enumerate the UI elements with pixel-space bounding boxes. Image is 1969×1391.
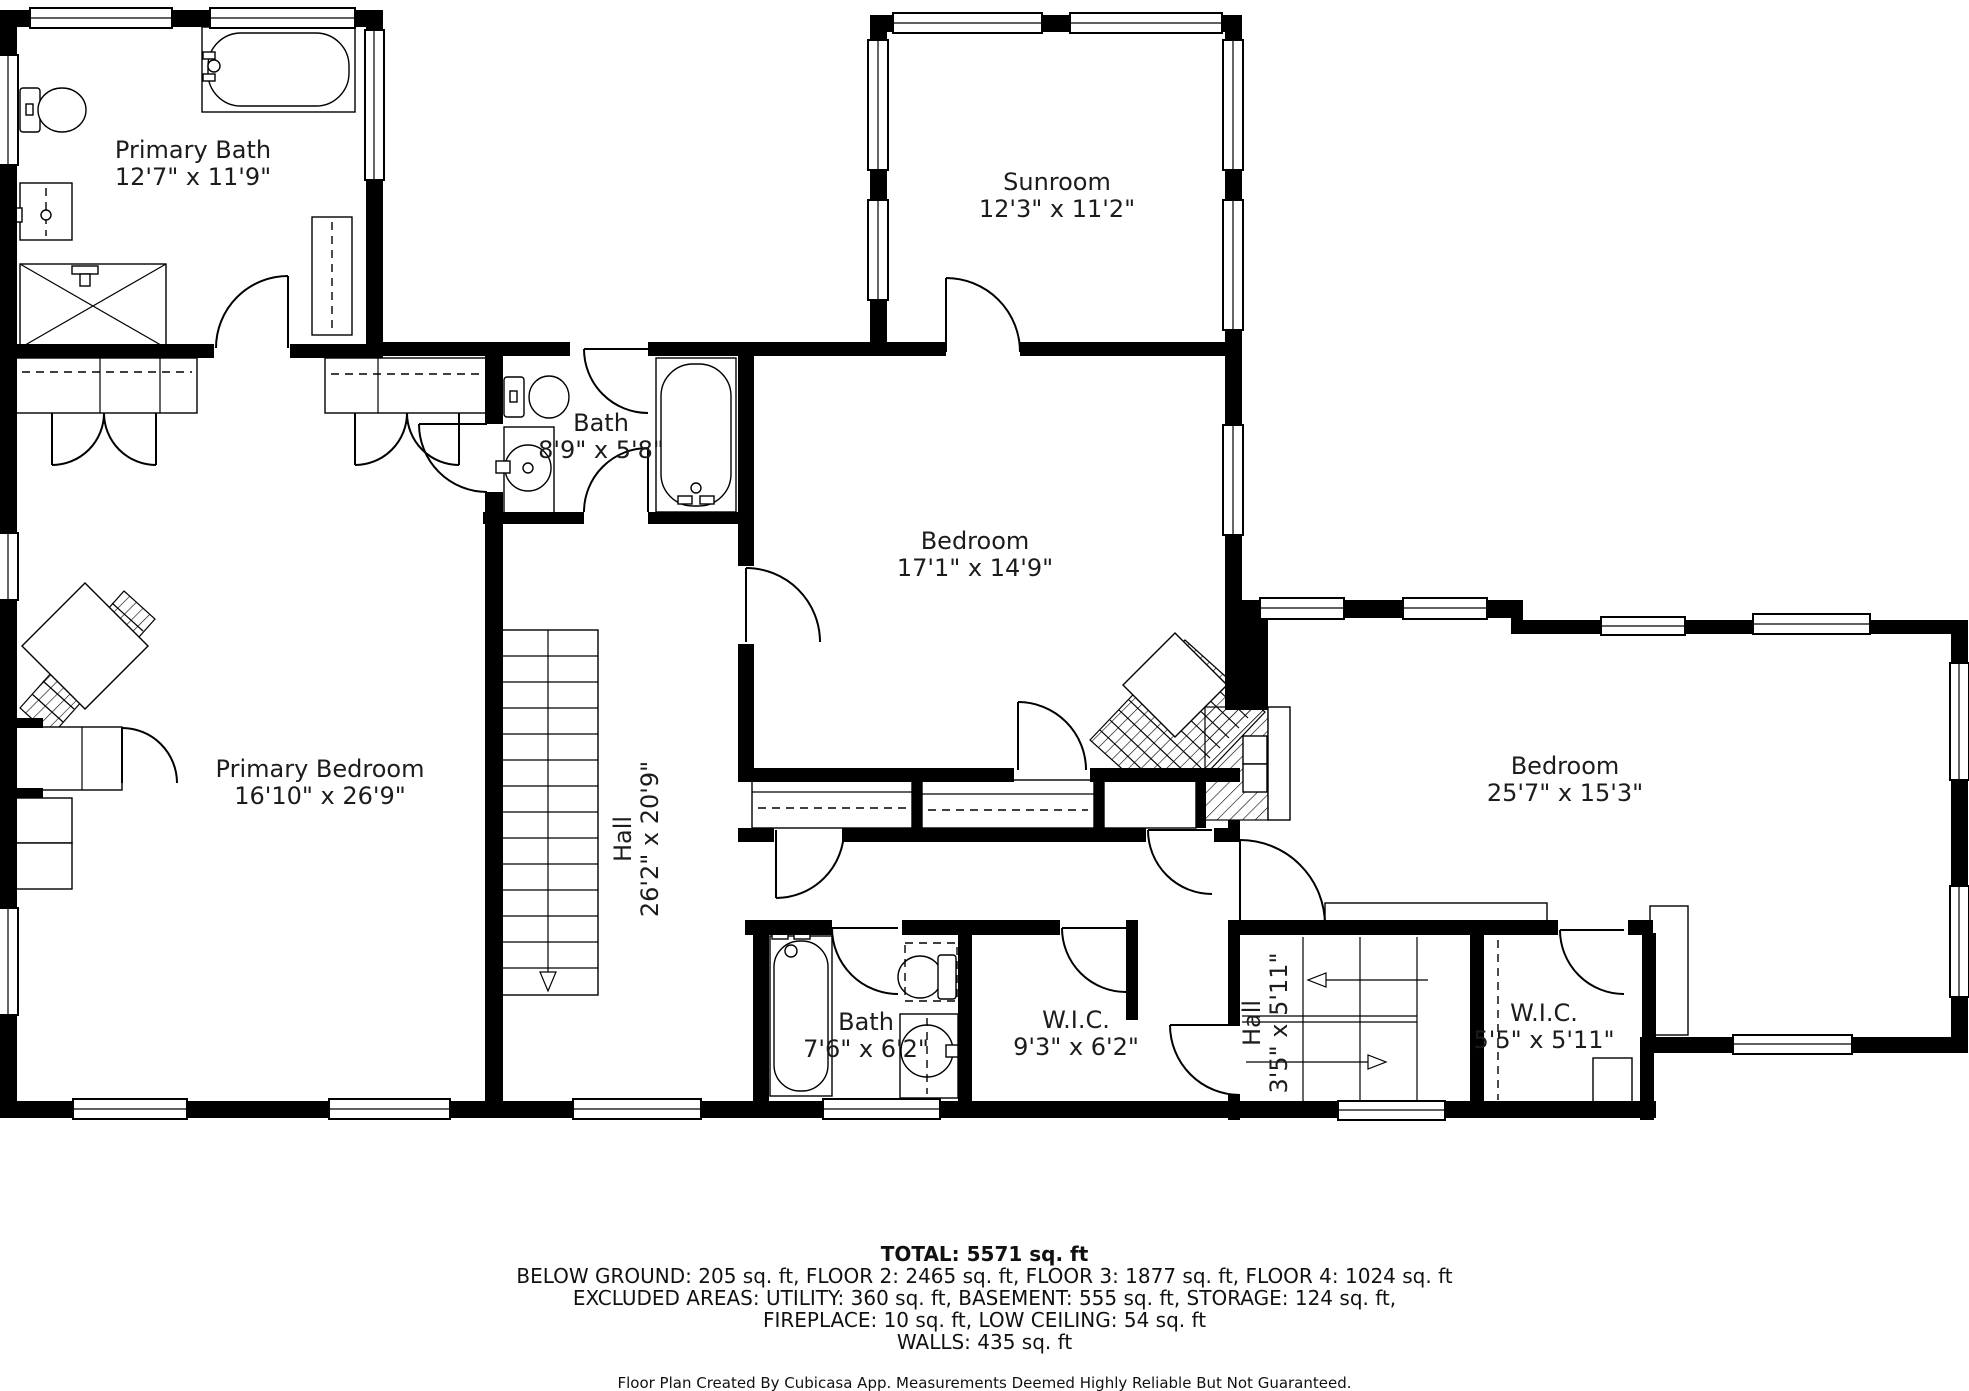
bedroom-closets <box>752 780 1196 828</box>
stairs-hall <box>498 630 598 995</box>
area-line: WALLS: 435 sq. ft <box>0 1331 1969 1353</box>
area-line: FIREPLACE: 10 sq. ft, LOW CEILING: 54 sq… <box>0 1309 1969 1331</box>
window <box>893 13 1042 33</box>
room-label-bedroom-middle: Bedroom17'1" x 14'9" <box>897 527 1053 582</box>
shelf <box>16 843 72 889</box>
double-door-closet-left <box>52 413 156 465</box>
stairs-primary-bedroom-diagonal <box>20 583 155 736</box>
primary-bedroom-furniture <box>16 727 122 889</box>
room-label-wic-small: W.I.C.5'5" x 5'11" <box>1473 999 1614 1054</box>
room-dimensions: 3'5" x 5'11" <box>1265 952 1293 1093</box>
fireplace <box>1205 707 1290 820</box>
room-name: Sunroom <box>1003 168 1111 196</box>
area-summary: TOTAL: 5571 sq. ft BELOW GROUND: 205 sq.… <box>0 1243 1969 1353</box>
closet <box>16 358 197 413</box>
window <box>0 533 18 600</box>
door-corridor-left <box>776 830 844 898</box>
window <box>1223 40 1243 170</box>
window <box>1338 1101 1445 1120</box>
window <box>210 8 355 28</box>
faucet-icon <box>785 945 797 957</box>
door-primary-bedroom <box>419 424 487 492</box>
total-area: TOTAL: 5571 sq. ft <box>0 1243 1969 1265</box>
area-line: EXCLUDED AREAS: UTILITY: 360 sq. ft, BAS… <box>0 1287 1969 1309</box>
stairs-arrow-icon <box>1308 973 1326 987</box>
doors <box>52 276 1624 1095</box>
room-label-hall-lower: Hall3'5" x 5'11" <box>1238 952 1293 1093</box>
room-label-bath-middle: Bath8'9" x 5'8" <box>538 409 664 464</box>
credit-line: Floor Plan Created By Cubicasa App. Meas… <box>0 1374 1969 1391</box>
room-dimensions: 25'7" x 15'3" <box>1487 779 1643 807</box>
window <box>1733 1035 1852 1054</box>
stairs-arrow-icon <box>1368 1055 1386 1069</box>
door-bedroom-middle-bottom <box>1018 702 1086 770</box>
room-label-hall-main: Hall26'2" x 20'9" <box>609 761 664 917</box>
room-dimensions: 5'5" x 5'11" <box>1473 1026 1614 1054</box>
window <box>1753 614 1870 634</box>
window <box>365 30 384 180</box>
room-dimensions: 12'7" x 11'9" <box>115 163 271 191</box>
window <box>1070 13 1222 33</box>
door-corridor-right <box>1148 830 1212 894</box>
room-name: Primary Bedroom <box>216 755 425 783</box>
window <box>1601 617 1685 635</box>
faucet-icon <box>208 60 220 72</box>
window <box>0 908 18 1015</box>
door-wic-small <box>1560 930 1624 994</box>
room-label-bedroom-right: Bedroom25'7" x 15'3" <box>1487 752 1643 807</box>
window <box>0 55 18 165</box>
room-dimensions: 12'3" x 11'2" <box>979 195 1135 223</box>
room-dimensions: 7'6" x 6'2" <box>803 1035 929 1063</box>
room-name: Primary Bath <box>115 136 271 164</box>
door-bedroom-right <box>1240 840 1325 925</box>
door-sunroom <box>946 278 1020 352</box>
window <box>1950 663 1969 780</box>
window <box>1223 425 1243 535</box>
room-name: Bath <box>838 1008 894 1036</box>
faucet-icon <box>691 483 701 493</box>
closet <box>752 780 912 828</box>
room-dimensions: 8'9" x 5'8" <box>538 436 664 464</box>
window <box>73 1099 187 1119</box>
shelf <box>16 798 72 843</box>
linen-cabinet <box>312 217 352 335</box>
closet <box>325 358 487 413</box>
window <box>1223 200 1243 330</box>
window <box>868 200 888 300</box>
room-name: Bedroom <box>921 527 1030 555</box>
room-dimensions: 16'10" x 26'9" <box>234 782 406 810</box>
window <box>1950 886 1969 997</box>
window <box>573 1099 701 1119</box>
shelf <box>1593 1058 1632 1104</box>
closet <box>1104 780 1196 828</box>
room-name: W.I.C. <box>1510 999 1578 1027</box>
floor-plan-svg: Primary Bath12'7" x 11'9"Sunroom12'3" x … <box>0 0 1969 1391</box>
door-lower-hall <box>1170 1025 1240 1095</box>
room-name: Bedroom <box>1511 752 1620 780</box>
door-bath-lower <box>832 928 898 994</box>
room-name: Bath <box>573 409 629 437</box>
door-primary-closet <box>122 728 177 783</box>
double-door-closet-right <box>355 413 459 465</box>
door-bedroom-middle-left <box>746 568 820 642</box>
room-dimensions: 17'1" x 14'9" <box>897 554 1053 582</box>
floor-plan-canvas: Primary Bath12'7" x 11'9"Sunroom12'3" x … <box>0 0 1969 1391</box>
room-label-wic-large: W.I.C.9'3" x 6'2" <box>1013 1006 1139 1061</box>
window <box>868 40 888 170</box>
door-wic-large <box>1062 928 1126 992</box>
room-label-primary-bedroom: Primary Bedroom16'10" x 26'9" <box>216 755 425 810</box>
window <box>30 8 172 28</box>
room-name: W.I.C. <box>1042 1006 1110 1034</box>
room-name: Hall <box>609 816 637 862</box>
room-label-sunroom: Sunroom12'3" x 11'2" <box>979 168 1135 223</box>
window <box>823 1099 940 1119</box>
door-primary-bath <box>216 276 288 348</box>
closet <box>922 780 1094 828</box>
primary-suite-closets <box>16 358 487 413</box>
area-line: BELOW GROUND: 205 sq. ft, FLOOR 2: 2465 … <box>0 1265 1969 1287</box>
room-label-primary-bath: Primary Bath12'7" x 11'9" <box>115 136 271 191</box>
window <box>1260 598 1344 619</box>
window <box>329 1099 450 1119</box>
room-name: Hall <box>1238 1000 1266 1046</box>
closet <box>16 727 122 790</box>
room-dimensions: 26'2" x 20'9" <box>636 761 664 917</box>
room-dimensions: 9'3" x 6'2" <box>1013 1033 1139 1061</box>
door-bath-middle-top <box>584 349 648 413</box>
window <box>1403 598 1487 619</box>
